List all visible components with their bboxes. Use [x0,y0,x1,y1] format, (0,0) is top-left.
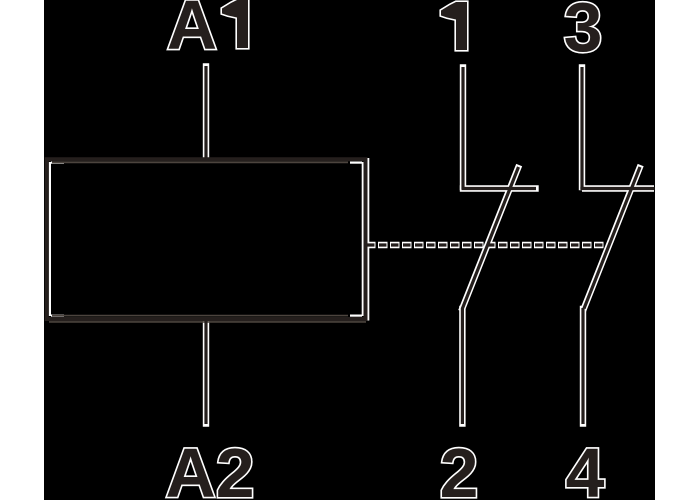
svg-text:A2: A2 [165,434,254,500]
svg-text:2: 2 [440,434,479,500]
svg-text:A: A [167,0,217,64]
svg-text:3: 3 [564,0,603,66]
svg-text:4: 4 [566,434,605,500]
